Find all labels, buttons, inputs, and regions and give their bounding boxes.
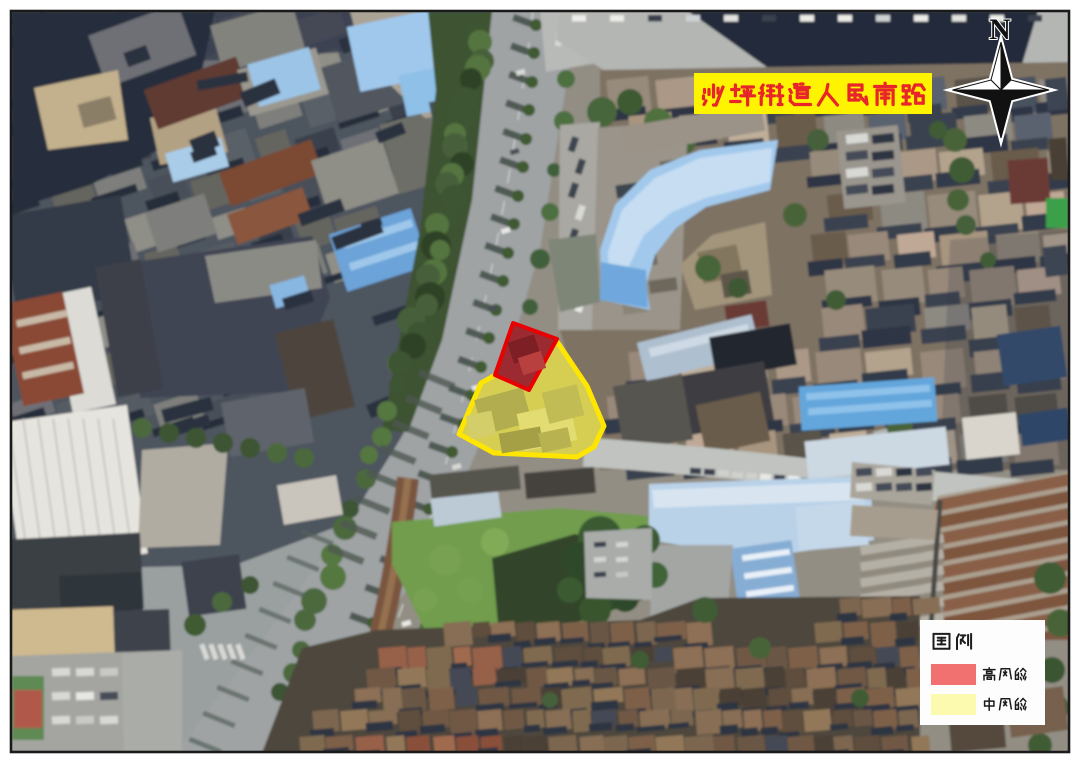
svg-text:N: N bbox=[989, 13, 1011, 46]
